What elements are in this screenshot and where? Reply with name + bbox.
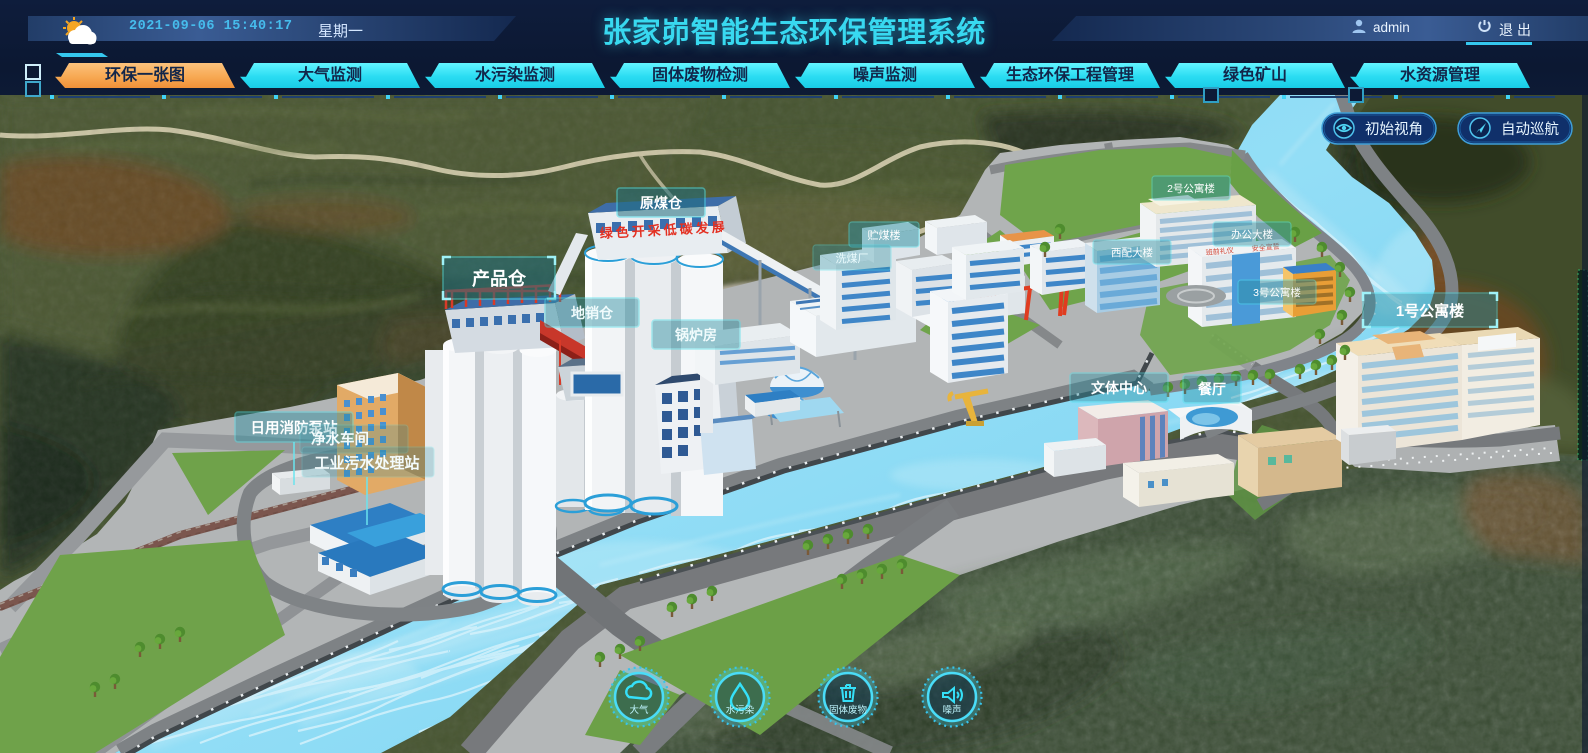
svg-text:工业污水处理站: 工业污水处理站 — [314, 454, 419, 472]
svg-text:自动巡航: 自动巡航 — [1501, 121, 1559, 138]
svg-text:水污染: 水污染 — [726, 704, 755, 716]
svg-text:西配大楼: 西配大楼 — [1111, 246, 1153, 259]
svg-text:办公大楼: 办公大楼 — [1231, 228, 1273, 241]
svg-text:3号公寓楼: 3号公寓楼 — [1253, 286, 1301, 299]
svg-text:固体废物: 固体废物 — [829, 704, 868, 716]
svg-text:原煤仓: 原煤仓 — [640, 195, 683, 211]
svg-text:洗煤厂: 洗煤厂 — [836, 252, 869, 265]
svg-text:噪声: 噪声 — [942, 704, 961, 716]
svg-text:文体中心: 文体中心 — [1091, 380, 1147, 396]
svg-text:大气: 大气 — [629, 704, 649, 716]
svg-text:初始视角: 初始视角 — [1365, 121, 1423, 138]
svg-text:1号公寓楼: 1号公寓楼 — [1396, 302, 1464, 320]
svg-text:锅炉房: 锅炉房 — [675, 327, 717, 343]
svg-text:2号公寓楼: 2号公寓楼 — [1167, 182, 1215, 195]
svg-text:产品仓: 产品仓 — [472, 268, 527, 289]
svg-text:净水车间: 净水车间 — [311, 430, 369, 448]
svg-text:餐厅: 餐厅 — [1197, 381, 1226, 397]
svg-text:地销仓: 地销仓 — [571, 305, 614, 321]
svg-text:贮煤楼: 贮煤楼 — [868, 228, 901, 242]
